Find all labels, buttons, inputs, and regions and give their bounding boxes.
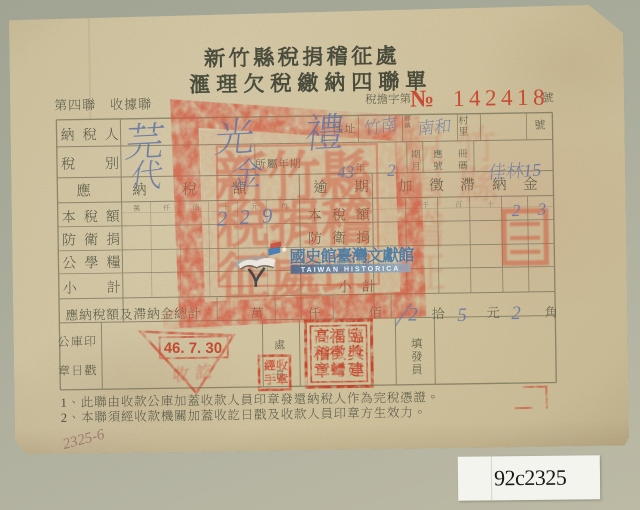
svg-text:2: 2 xyxy=(61,411,68,425)
svg-text:3: 3 xyxy=(537,200,547,219)
svg-text:142418: 142418 xyxy=(453,85,549,111)
svg-text:229: 229 xyxy=(216,202,285,230)
svg-text:1: 1 xyxy=(60,396,67,410)
svg-text:2: 2 xyxy=(408,305,418,326)
svg-text:15: 15 xyxy=(523,160,542,181)
svg-text:№: № xyxy=(410,86,435,112)
svg-text:2: 2 xyxy=(512,201,521,220)
svg-text:43: 43 xyxy=(337,162,354,181)
svg-text:TAIWAN HISTORICA: TAIWAN HISTORICA xyxy=(301,266,400,274)
svg-text:5: 5 xyxy=(457,305,467,326)
svg-text:2: 2 xyxy=(387,161,396,180)
svg-text:46. 7. 30: 46. 7. 30 xyxy=(164,340,222,357)
svg-text:2: 2 xyxy=(511,303,521,324)
